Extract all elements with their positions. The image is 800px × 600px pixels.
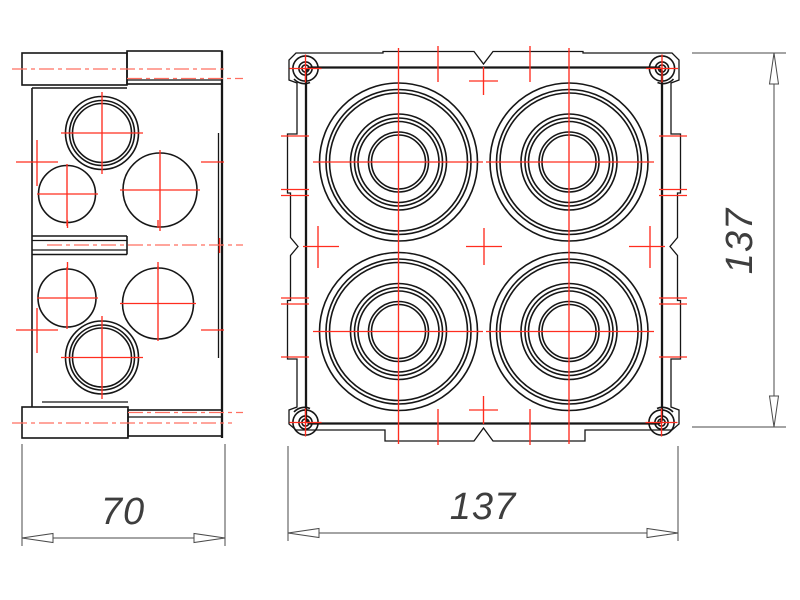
technical-drawing: 70 137 137 [0, 0, 800, 600]
dimension-side-width: 70 [22, 444, 225, 546]
screw-boss-bottom-left [290, 407, 322, 436]
dimension-label-front-width: 137 [450, 486, 517, 528]
arrowhead-right [647, 529, 678, 538]
arrowhead-left [22, 534, 53, 543]
arrowhead-right [194, 534, 225, 543]
front-view [281, 46, 687, 445]
dimension-front-width: 137 [288, 446, 678, 541]
arrowhead-top [770, 53, 779, 84]
arrowhead-left [288, 529, 319, 538]
screw-boss-bottom-right [646, 407, 678, 436]
dimension-front-height: 137 [692, 53, 786, 427]
side-view [12, 51, 243, 438]
drawing-canvas: 70 137 137 [0, 0, 800, 600]
dimension-label-side-width: 70 [101, 491, 145, 533]
screw-boss-top-right [646, 55, 678, 84]
dimension-label-front-height: 137 [719, 207, 761, 274]
screw-boss-top-left [290, 55, 322, 84]
arrowhead-bottom [770, 396, 779, 427]
